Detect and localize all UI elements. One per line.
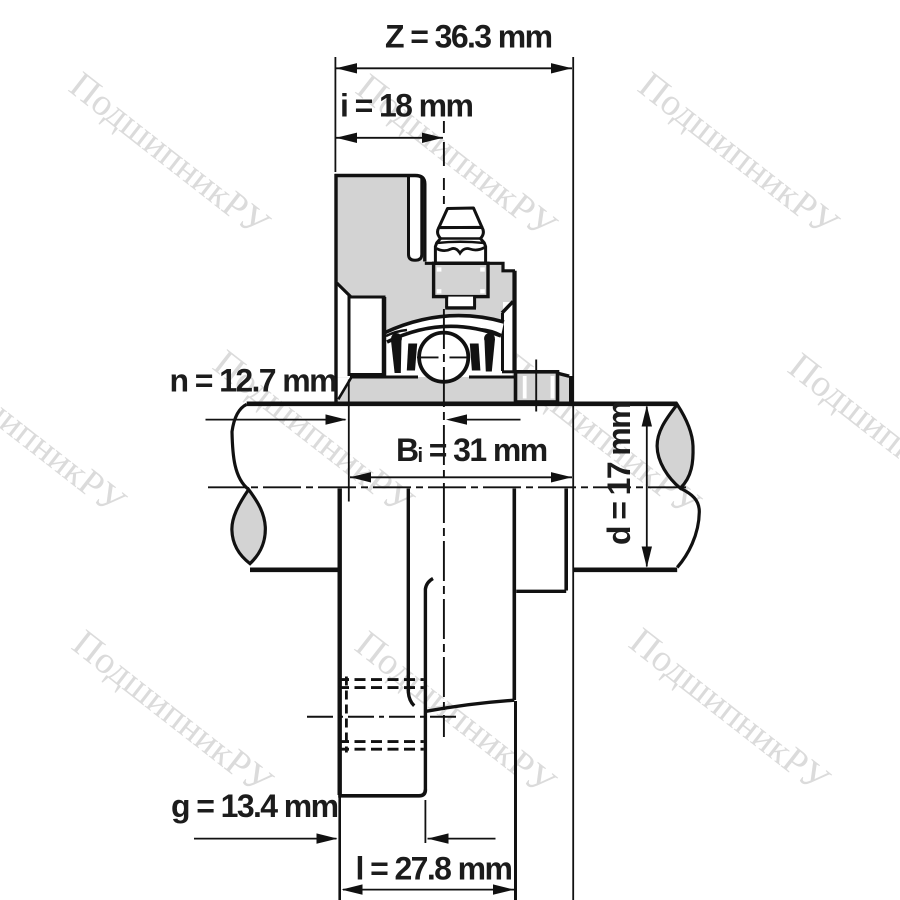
svg-text:g = 13.4 mm: g = 13.4 mm: [171, 788, 338, 824]
svg-text:l = 27.8 mm: l = 27.8 mm: [356, 851, 512, 887]
svg-text:Z = 36.3 mm: Z = 36.3 mm: [385, 19, 552, 55]
svg-text:d = 17 mm: d = 17 mm: [601, 402, 637, 545]
svg-text:i = 18 mm: i = 18 mm: [340, 88, 472, 124]
svg-text:n = 12.7 mm: n = 12.7 mm: [170, 363, 337, 399]
